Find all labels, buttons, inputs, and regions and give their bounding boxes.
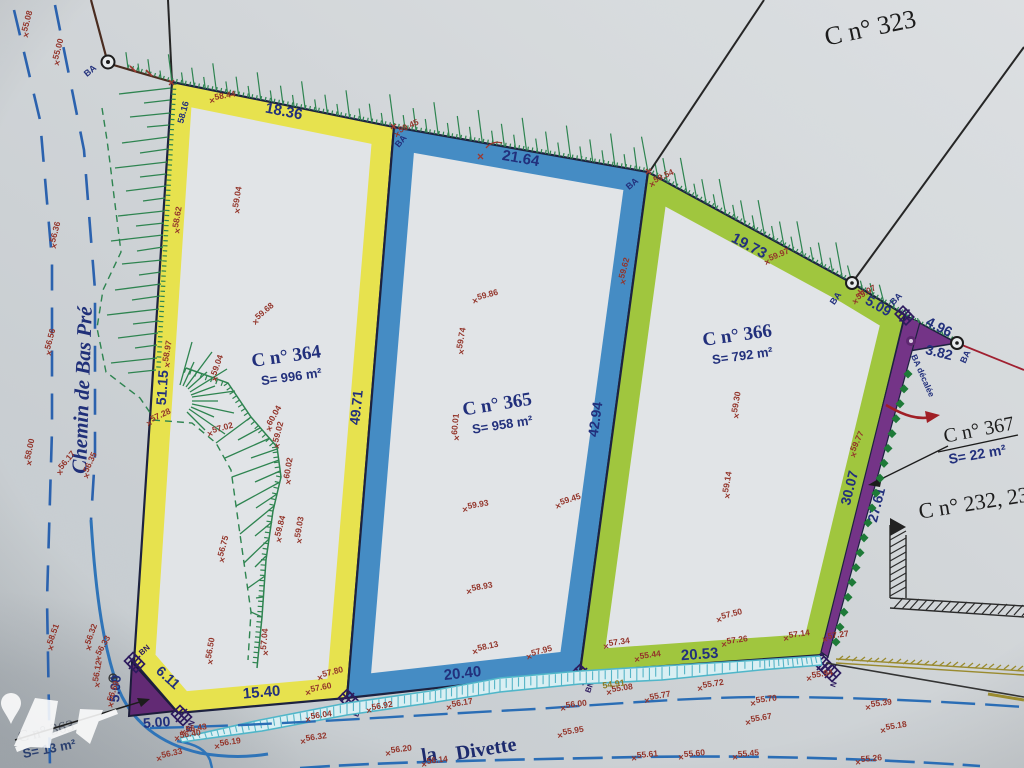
svg-text:55.45: 55.45	[737, 747, 759, 759]
svg-text:55.60: 55.60	[683, 747, 705, 759]
svg-text:20.53: 20.53	[680, 645, 719, 665]
svg-text:60.01: 60.01	[449, 413, 461, 435]
svg-text:55.61: 55.61	[636, 748, 658, 760]
svg-text:51.15: 51.15	[153, 369, 171, 405]
svg-text:15.40: 15.40	[242, 682, 281, 702]
svg-text:57.04: 57.04	[258, 628, 270, 650]
svg-text:55.26: 55.26	[860, 752, 882, 764]
